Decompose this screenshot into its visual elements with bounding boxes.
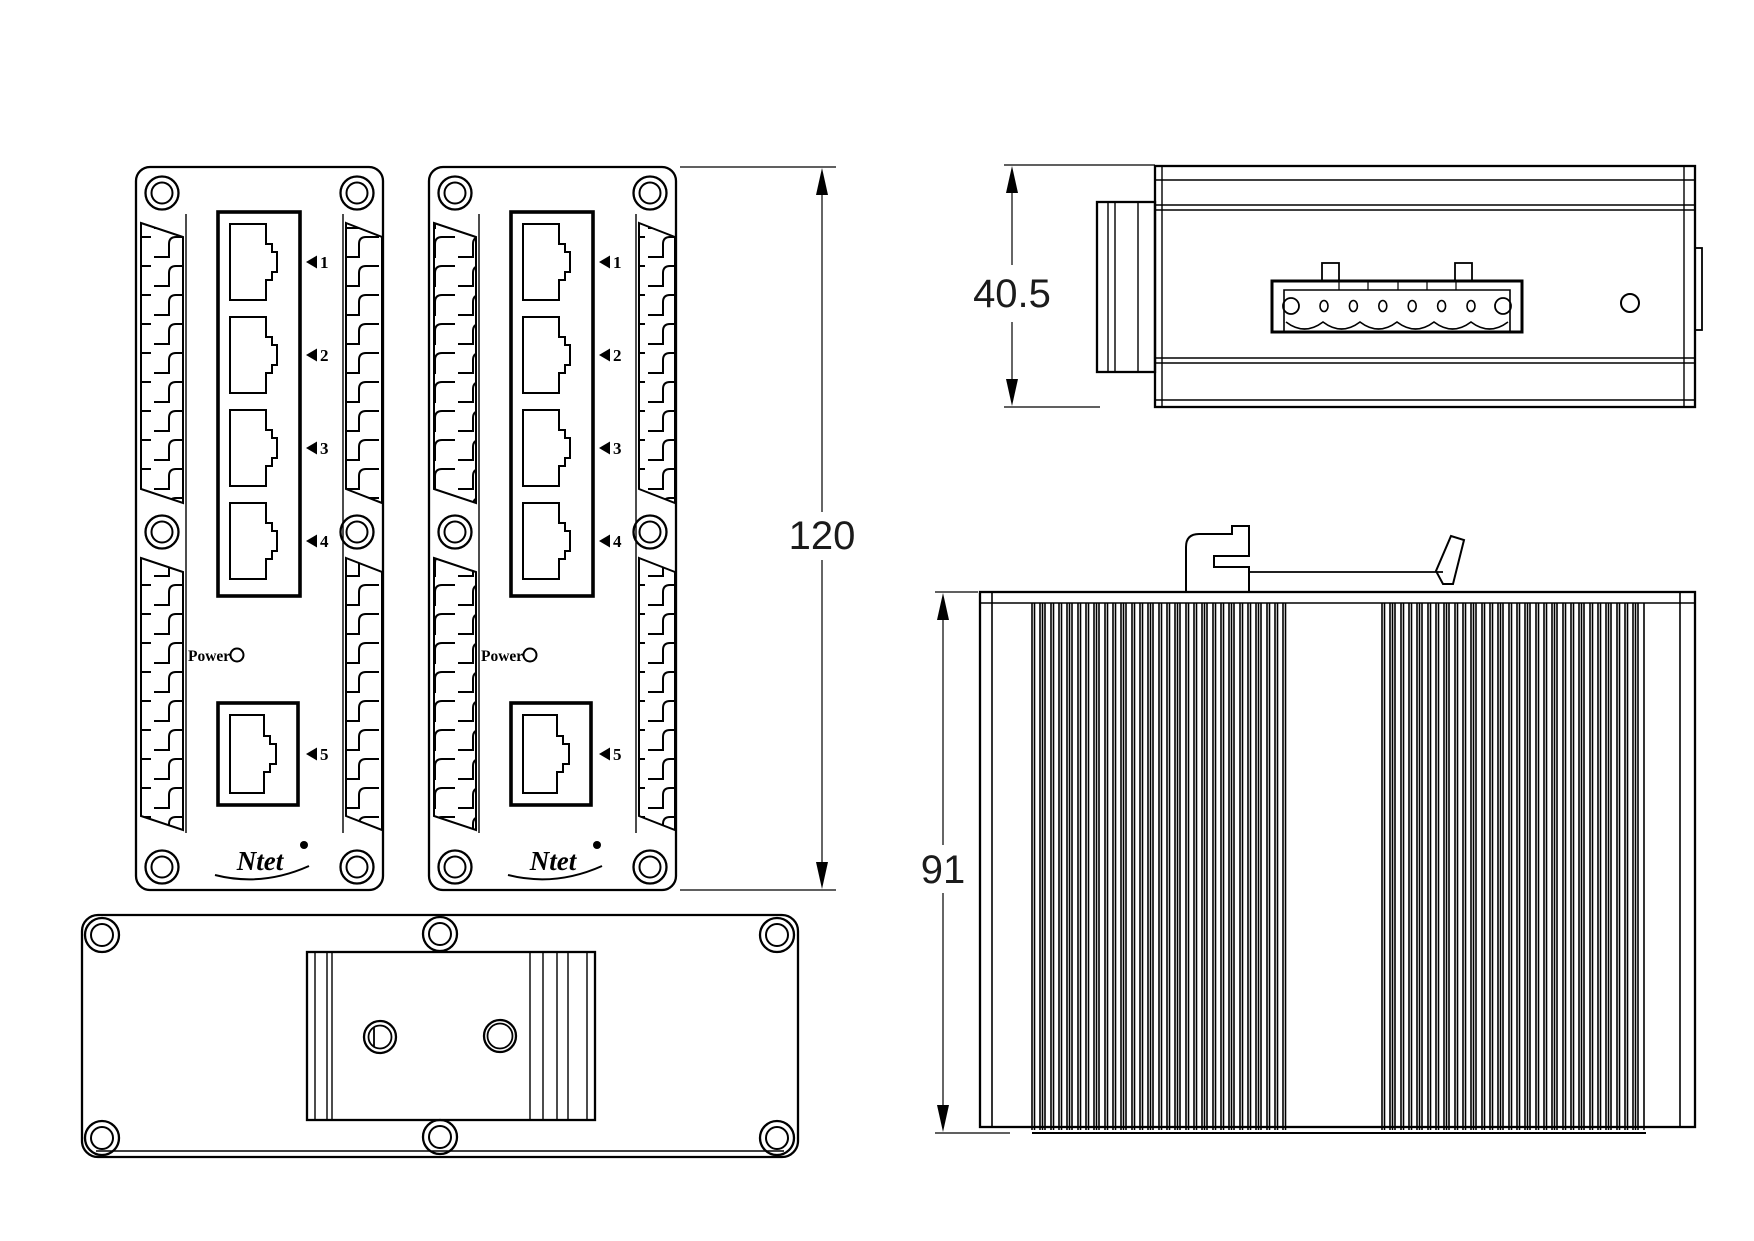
vent-flange — [346, 558, 382, 830]
brand-logo-text: Ntet — [529, 846, 578, 876]
vent-flange — [639, 223, 675, 503]
port-label: 1 — [320, 253, 329, 272]
port-label: 4 — [320, 532, 329, 551]
vent-flange — [141, 558, 183, 830]
vent-flange — [141, 223, 183, 503]
port-label: 3 — [613, 439, 622, 458]
technical-drawing-canvas: 1234Power5Ntet 1234Power5Ntet 120 — [0, 0, 1754, 1241]
registered-mark-dot — [593, 841, 601, 849]
power-label: Power — [481, 648, 523, 665]
port-label: 4 — [613, 532, 622, 551]
vent-flange — [434, 558, 476, 830]
port-label: 3 — [320, 439, 329, 458]
vent-flange — [346, 223, 382, 503]
dimension-text-91: 91 — [921, 848, 966, 892]
vent-flange — [639, 558, 675, 830]
brand-logo-text: Ntet — [236, 846, 285, 876]
registered-mark-dot — [300, 841, 308, 849]
switch-dimension-drawing: 1234Power5Ntet 1234Power5Ntet 120 — [0, 0, 1754, 1241]
port-label: 5 — [320, 745, 329, 764]
power-label: Power — [188, 648, 230, 665]
port-label: 5 — [613, 745, 622, 764]
port-label: 2 — [613, 346, 622, 365]
port-label: 2 — [320, 346, 329, 365]
dimension-text-120: 120 — [789, 514, 856, 558]
vent-flange — [434, 223, 476, 503]
paper-background — [0, 0, 1754, 1241]
dimension-text-40-5: 40.5 — [973, 272, 1051, 316]
port-label: 1 — [613, 253, 622, 272]
